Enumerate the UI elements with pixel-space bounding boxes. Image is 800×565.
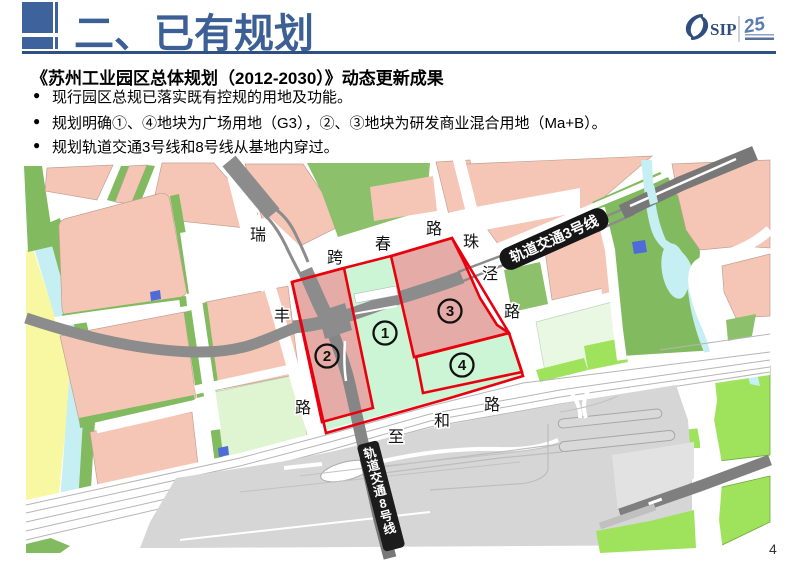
svg-text:丰: 丰 — [274, 307, 290, 325]
svg-text:春: 春 — [375, 235, 391, 253]
svg-text:跨: 跨 — [327, 249, 343, 267]
svg-text:3: 3 — [446, 303, 454, 320]
svg-text:珠: 珠 — [463, 233, 479, 251]
svg-text:2: 2 — [323, 348, 331, 365]
svg-text:路: 路 — [484, 396, 500, 414]
svg-text:1: 1 — [381, 325, 389, 342]
svg-text:和: 和 — [434, 412, 450, 430]
svg-text:路: 路 — [504, 303, 520, 321]
svg-text:路: 路 — [295, 399, 311, 417]
svg-text:路: 路 — [426, 220, 442, 238]
svg-text:4: 4 — [458, 357, 467, 374]
svg-text:瑞: 瑞 — [250, 226, 266, 244]
svg-text:泾: 泾 — [482, 265, 498, 283]
svg-text:至: 至 — [388, 429, 404, 446]
